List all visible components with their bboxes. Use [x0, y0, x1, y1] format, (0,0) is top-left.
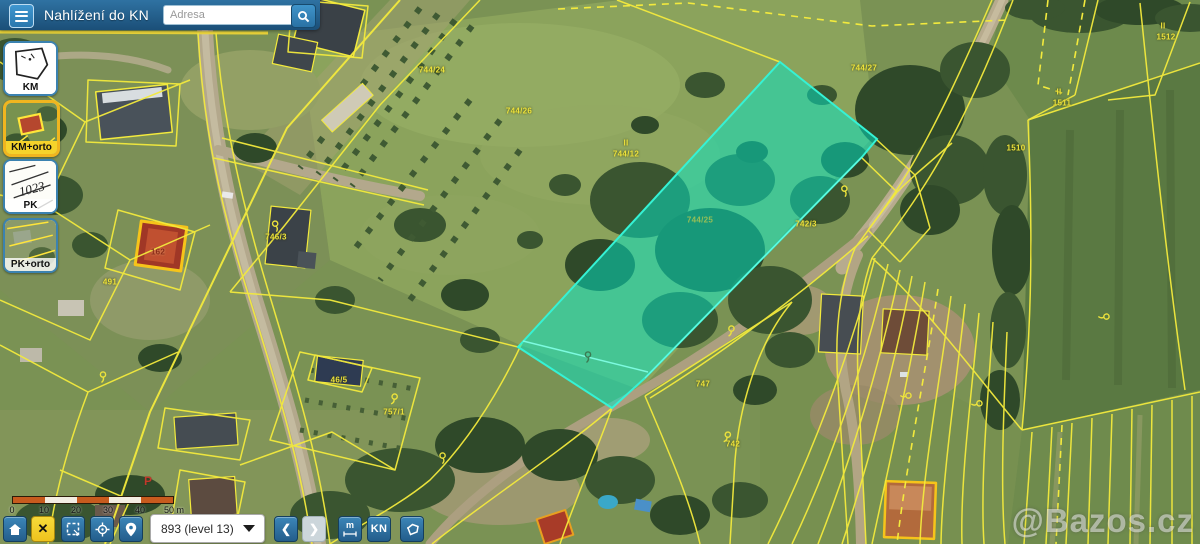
measure-button[interactable]: m [338, 516, 362, 542]
chevron-down-icon [243, 525, 255, 532]
scale-tick: 30 [103, 505, 113, 515]
layer-label: PK+orto [5, 258, 56, 271]
home-button[interactable] [3, 516, 27, 542]
scale-tick: 40 [135, 505, 145, 515]
search-icon [297, 10, 310, 23]
layer-label: KM+orto [6, 141, 57, 154]
crosshair-icon [95, 522, 110, 537]
marker-button[interactable] [119, 516, 143, 542]
lasso-icon [405, 523, 420, 536]
close-tool-button[interactable]: ✕ [31, 516, 55, 542]
layer-label: PK [5, 199, 56, 212]
layer-button-pk-orto[interactable]: PK+orto [3, 218, 58, 273]
watermark: @Bazos.cz [1012, 502, 1194, 540]
selection-box-icon [66, 522, 80, 536]
history-back-button[interactable]: ❮ [274, 516, 298, 542]
home-icon [8, 523, 22, 536]
area-select-button[interactable] [61, 516, 85, 542]
layer-button-km-orto[interactable]: KM+orto [3, 100, 60, 157]
zoom-level-select[interactable]: 893 (level 13) [150, 514, 265, 543]
search-button[interactable] [291, 4, 316, 28]
layer-label: KM [5, 81, 56, 94]
locate-button[interactable] [90, 516, 114, 542]
scale-tick: 0 [9, 505, 14, 515]
kn-info-button[interactable]: KN [367, 516, 391, 542]
search-input[interactable] [163, 5, 295, 25]
polygon-select-button[interactable] [400, 516, 424, 542]
scale-tick: 20 [71, 505, 81, 515]
ruler-icon: m [343, 521, 357, 537]
app-header: Nahlížení do KN [0, 0, 320, 30]
zoom-level-value: 893 (level 13) [151, 522, 243, 536]
app-title: Nahlížení do KN [44, 0, 149, 30]
scale-bar [12, 496, 174, 504]
map-pin-icon [125, 522, 137, 537]
scale-tick: 10 [39, 505, 49, 515]
layer-button-km[interactable]: KM [3, 41, 58, 96]
menu-icon[interactable] [9, 4, 34, 28]
history-forward-button[interactable]: ❯ [302, 516, 326, 542]
cadastre-viewer: 744/26II744/12744/25744/27744/24742/3747… [0, 0, 1200, 544]
map-canvas[interactable] [0, 0, 1200, 544]
layer-button-pk[interactable]: 1023 PK [3, 159, 58, 214]
